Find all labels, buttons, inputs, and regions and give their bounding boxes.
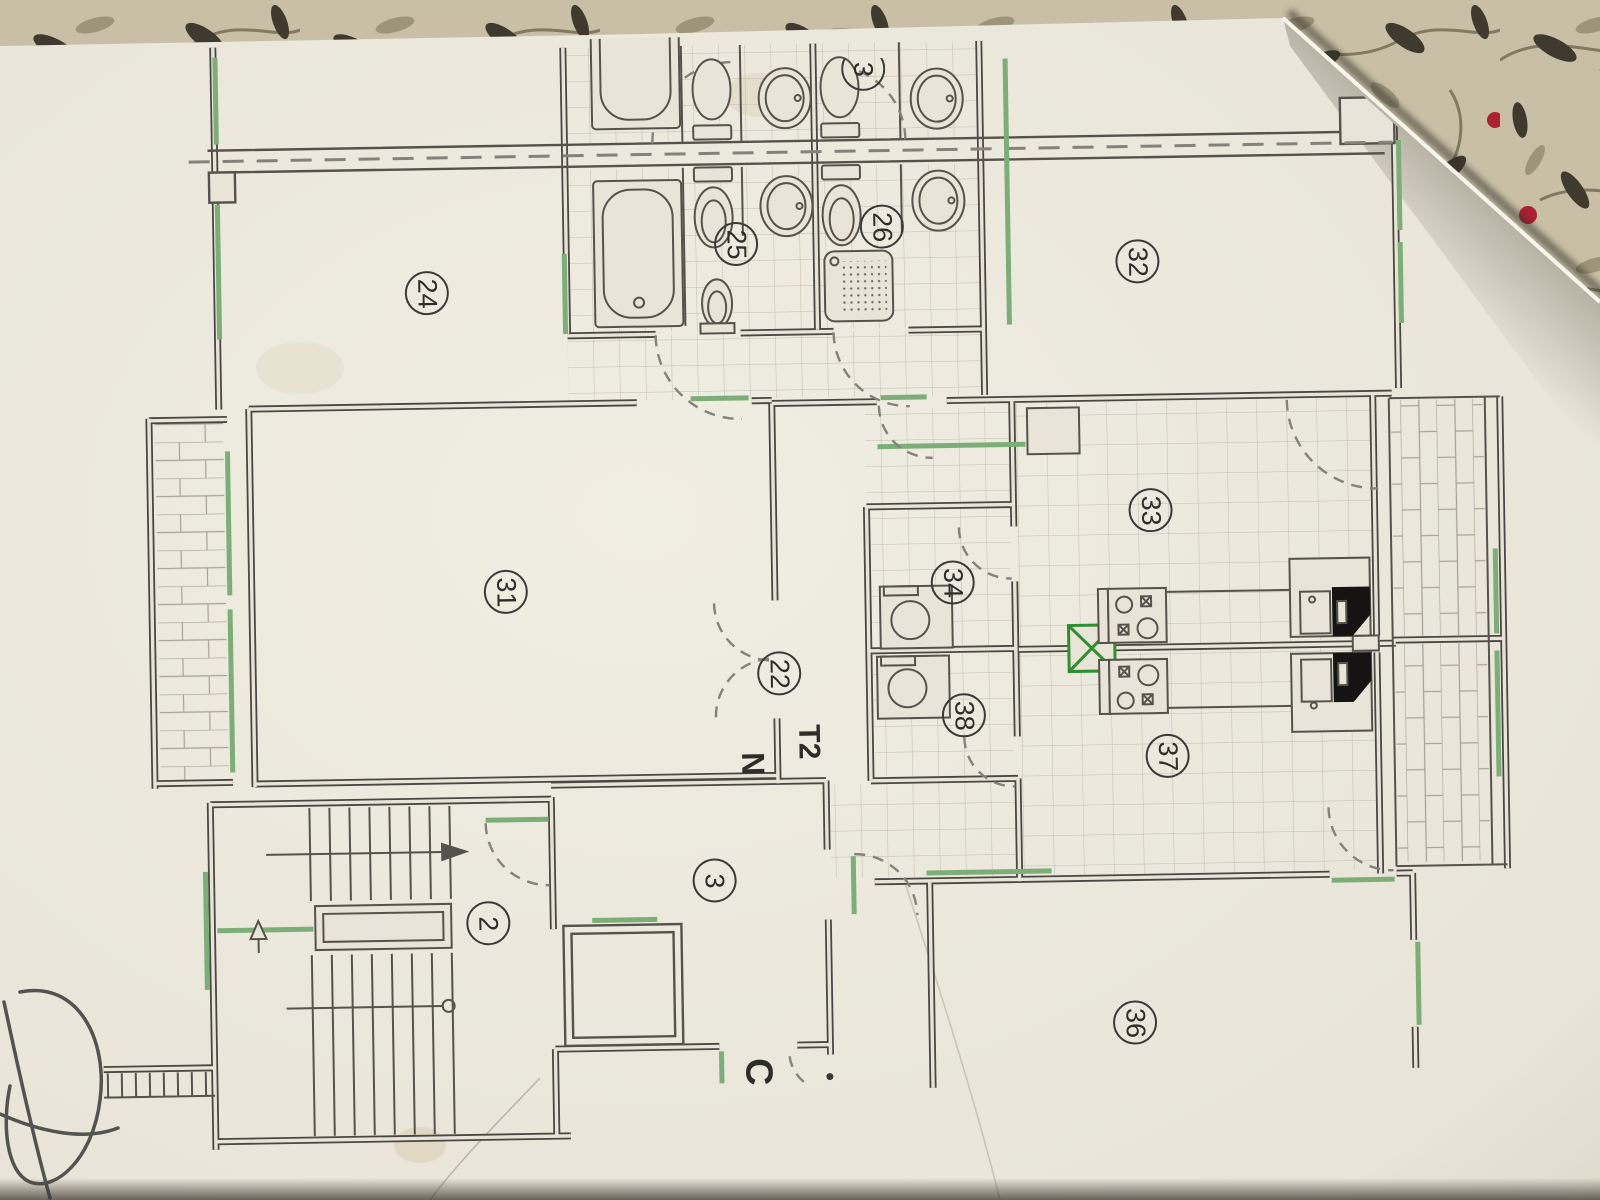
floor-plan-drawing: [0, 0, 1600, 1200]
shower-tray-icon: [824, 250, 893, 321]
tiled-floors: [563, 35, 1381, 883]
stove-icon: [1099, 659, 1168, 714]
room-number: 37: [1152, 741, 1183, 772]
elevator-icon: [563, 924, 683, 1046]
balcony-left: [155, 422, 229, 781]
annotation-unit: T2: [791, 724, 826, 760]
room-number: 36: [1119, 1007, 1150, 1038]
room-number: 22: [763, 658, 794, 689]
room-number: 3: [848, 61, 879, 77]
entrance-dot: [826, 1073, 833, 1080]
room-number: 34: [937, 567, 968, 598]
toilet-icon: [692, 59, 731, 140]
staircase-icon: [248, 806, 470, 1138]
kitchen-sink-icon: [1289, 558, 1370, 637]
room-number: 32: [1122, 246, 1153, 277]
annotation-north: N: [734, 752, 771, 776]
room-number: 25: [720, 229, 751, 260]
room-number: 33: [1135, 495, 1166, 526]
room-number: 38: [948, 700, 979, 731]
room-number: 24: [411, 278, 442, 309]
entrance-steps: [104, 1072, 215, 1098]
room-number: 31: [490, 577, 521, 608]
toilet-icon: [822, 165, 861, 246]
bathtub-icon: [593, 180, 683, 327]
section-dashed-line: [189, 142, 1393, 162]
room-number: 3: [699, 873, 730, 889]
stove-icon: [1098, 588, 1167, 643]
annotation-entrance: C: [736, 1058, 779, 1086]
plan-area: 2425263323122343833372336T2NC: [0, 0, 1600, 1200]
kitchen-sink-icon: [1291, 653, 1372, 732]
room-number: 26: [866, 211, 897, 242]
balcony-right-upper: [1391, 399, 1487, 636]
washing-machine-icon: [877, 656, 950, 719]
photo-of-floor-plan: 2425263323122343833372336T2NC: [0, 0, 1600, 1200]
room-number: 2: [473, 915, 504, 931]
balcony-right-lower: [1395, 643, 1491, 862]
